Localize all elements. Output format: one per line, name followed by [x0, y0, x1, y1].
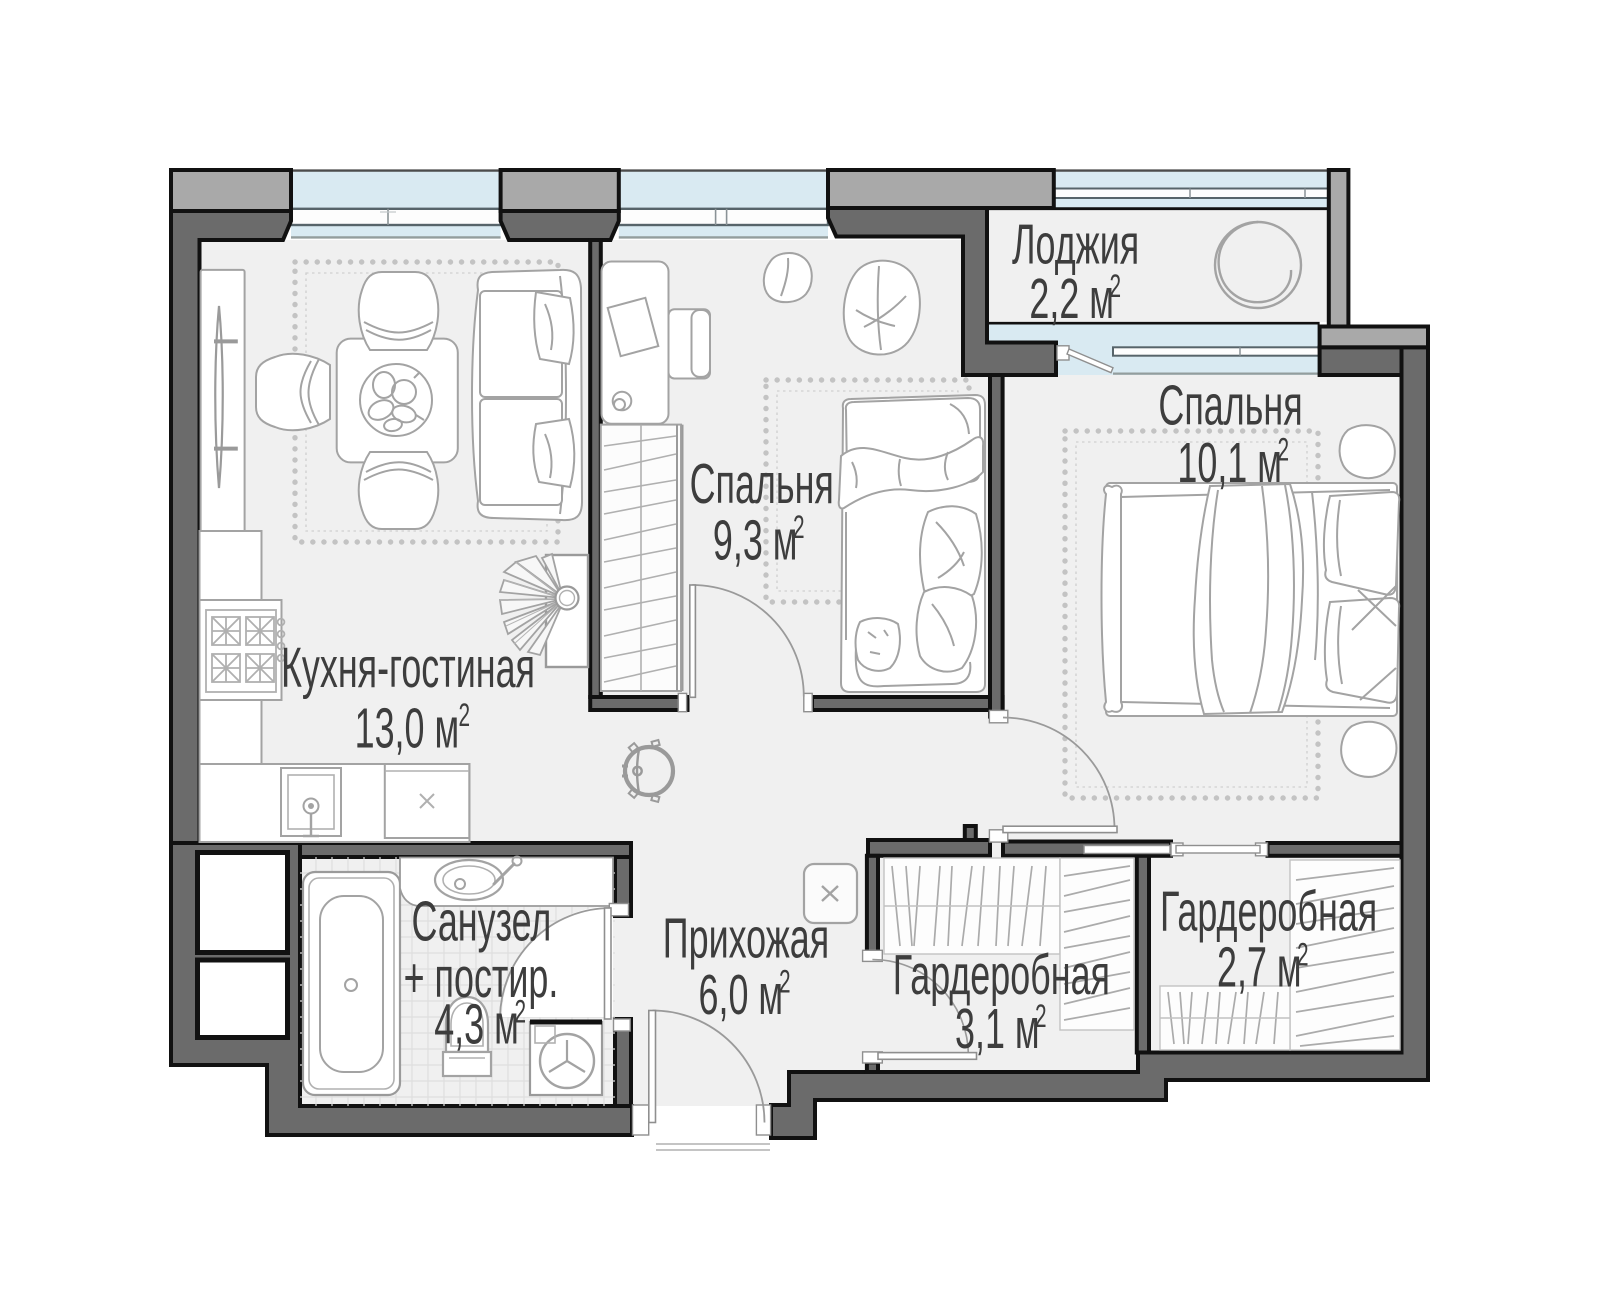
svg-text:Гардеробная: Гардеробная [1160, 880, 1377, 943]
svg-text:6,0 м: 6,0 м [699, 964, 784, 1027]
svg-text:2: 2 [515, 994, 527, 1030]
svg-text:2: 2 [793, 510, 805, 546]
svg-text:2,7 м: 2,7 м [1217, 936, 1302, 999]
svg-text:Спальня: Спальня [1158, 374, 1302, 437]
svg-text:2,2 м: 2,2 м [1029, 268, 1114, 331]
svg-text:10,1 м: 10,1 м [1177, 432, 1282, 495]
svg-text:Спальня: Спальня [690, 453, 834, 516]
svg-text:9,3 м: 9,3 м [713, 509, 798, 572]
svg-text:2: 2 [459, 698, 471, 734]
svg-text:3,1 м: 3,1 м [955, 998, 1040, 1061]
svg-text:Санузел: Санузел [412, 890, 552, 953]
svg-text:13,0 м: 13,0 м [355, 697, 460, 760]
svg-text:2: 2 [1278, 432, 1290, 468]
svg-text:2: 2 [1035, 999, 1047, 1035]
svg-text:2: 2 [779, 964, 791, 1000]
svg-text:2: 2 [1110, 269, 1122, 305]
svg-text:Прихожая: Прихожая [663, 907, 829, 970]
svg-text:4,3 м: 4,3 м [434, 993, 519, 1056]
svg-text:2: 2 [1297, 937, 1309, 973]
svg-text:Кухня-гостиная: Кухня-гостиная [281, 637, 535, 700]
